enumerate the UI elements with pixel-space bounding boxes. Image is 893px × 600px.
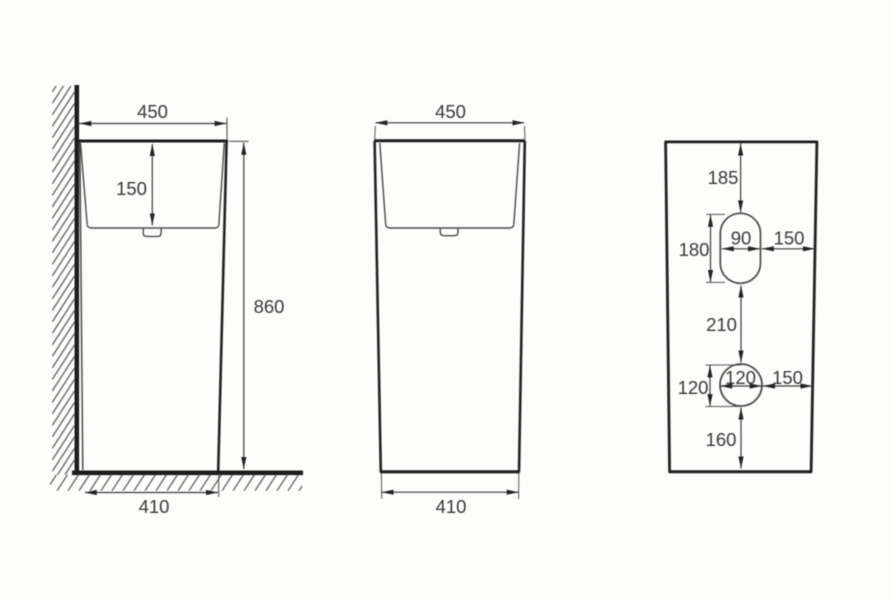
- svg-text:120: 120: [678, 377, 709, 398]
- svg-text:150: 150: [116, 178, 147, 199]
- svg-text:410: 410: [139, 496, 170, 517]
- svg-text:180: 180: [679, 239, 710, 260]
- svg-text:120: 120: [725, 367, 756, 388]
- svg-text:160: 160: [706, 429, 737, 450]
- svg-text:150: 150: [774, 227, 805, 248]
- svg-text:410: 410: [436, 496, 467, 517]
- svg-text:210: 210: [706, 314, 737, 335]
- svg-text:450: 450: [137, 101, 168, 122]
- svg-text:860: 860: [254, 296, 285, 317]
- svg-text:185: 185: [708, 167, 739, 188]
- svg-text:90: 90: [731, 227, 752, 248]
- svg-text:450: 450: [435, 101, 466, 122]
- svg-text:150: 150: [772, 367, 803, 388]
